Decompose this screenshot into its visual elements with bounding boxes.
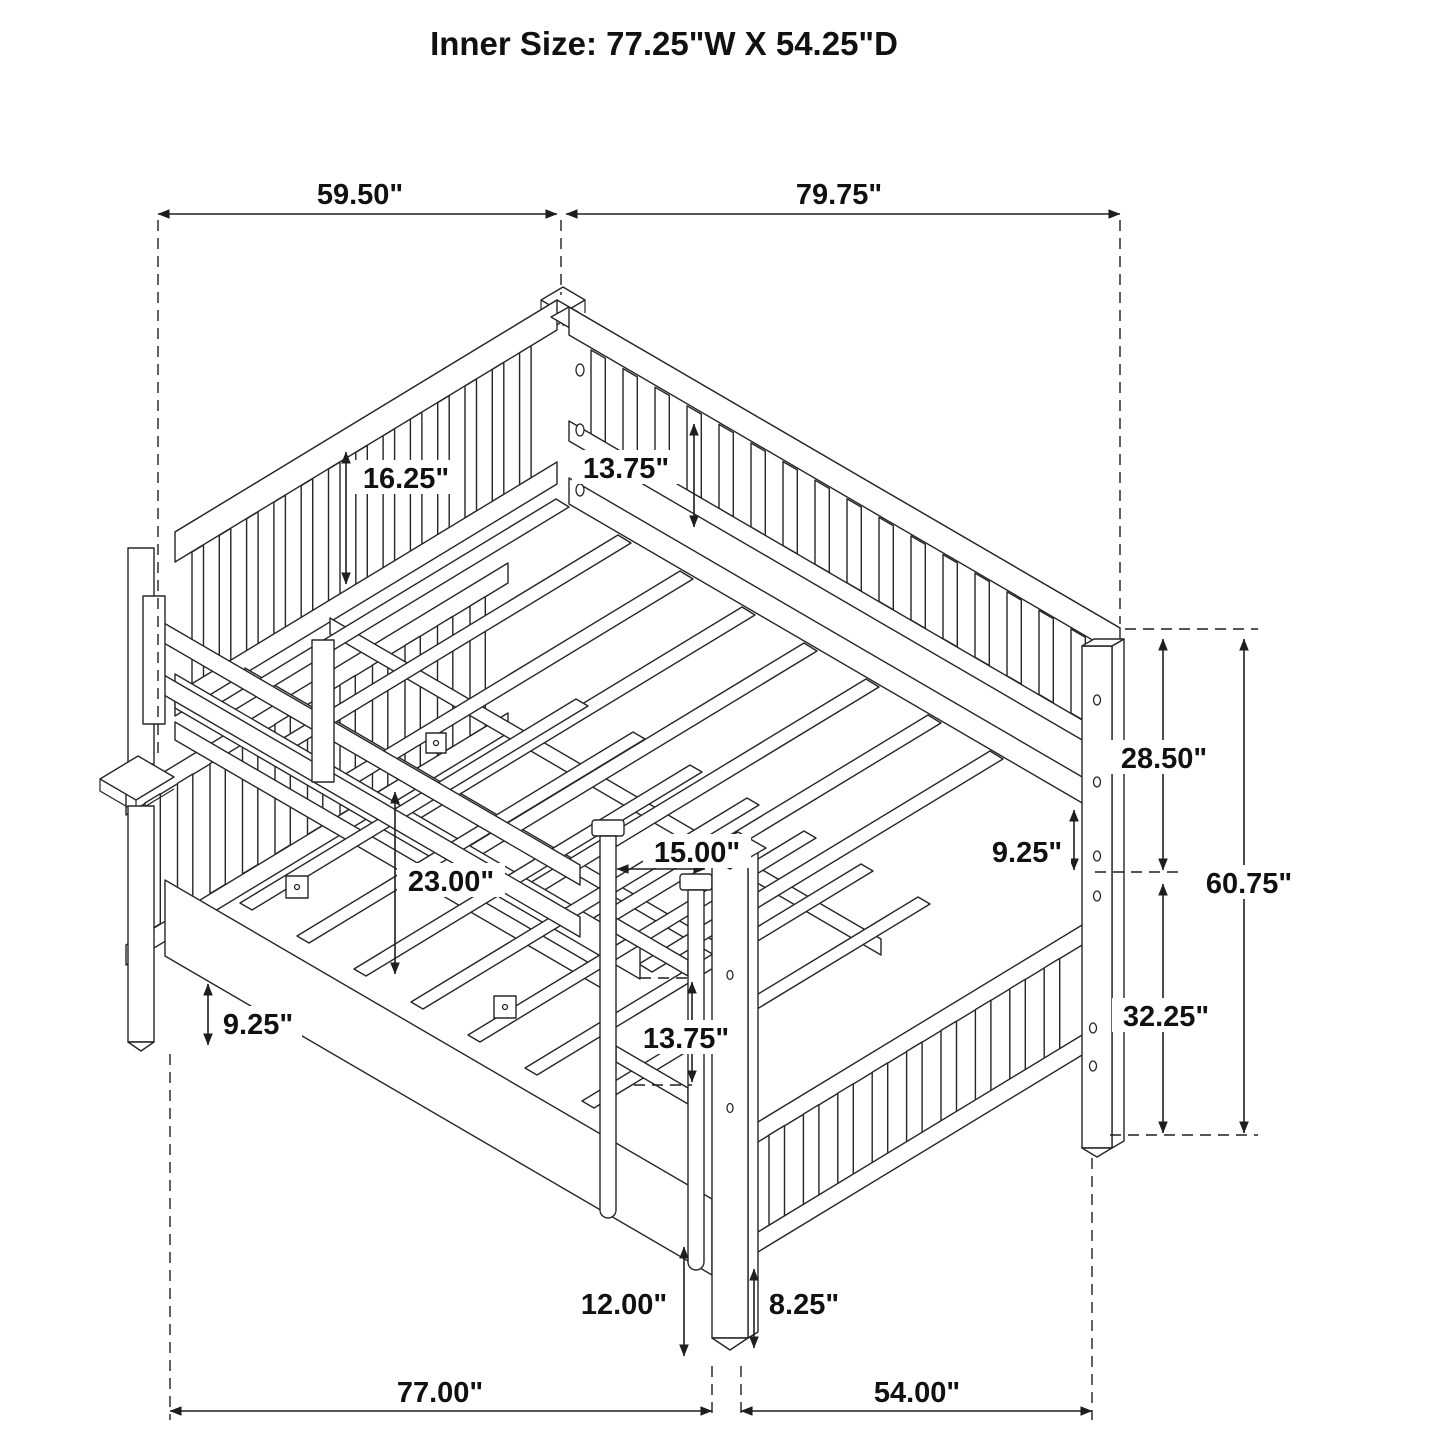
slat xyxy=(383,429,395,568)
dim-label-top-width-left: 59.50" xyxy=(317,179,403,211)
bunk-bed-dimension-diagram: 59.50" 79.75" 16.25" 13.75" 28.50" 9.25"… xyxy=(0,0,1445,1445)
slat xyxy=(911,536,925,628)
dim-label-base-width: 77.00" xyxy=(397,1377,483,1409)
slat xyxy=(301,479,313,618)
dim-label-headboard-panel: 16.25" xyxy=(363,463,449,495)
slat xyxy=(591,350,605,442)
slat xyxy=(210,754,225,893)
slat xyxy=(329,462,341,601)
slat xyxy=(815,480,829,572)
dim-label-ladder-bottom: 12.00" xyxy=(581,1289,667,1321)
slat xyxy=(247,512,259,651)
dim-label-upper-rail: 13.75" xyxy=(583,453,669,485)
slat xyxy=(465,379,477,518)
bed-drawing xyxy=(100,287,1124,1350)
slat xyxy=(274,495,286,634)
slat xyxy=(783,462,797,554)
slat xyxy=(623,369,637,461)
slat xyxy=(1039,610,1053,702)
slat xyxy=(943,555,957,647)
dim-label-post-leg: 8.25" xyxy=(769,1289,839,1321)
slat xyxy=(847,499,861,591)
right-post xyxy=(1082,639,1124,1157)
slat xyxy=(879,517,893,609)
dim-label-upper-section: 28.50" xyxy=(1121,743,1207,775)
dim-label-lower-section: 32.25" xyxy=(1123,1001,1209,1033)
dim-label-ladder-opening: 15.00" xyxy=(654,837,740,869)
dim-label-under-upper-clearance: 23.00" xyxy=(408,866,494,898)
dim-label-lower-rail: 13.75" xyxy=(643,1023,729,1055)
diagram-canvas: 59.50" 79.75" 16.25" 13.75" 28.50" 9.25"… xyxy=(0,0,1445,1445)
slat xyxy=(751,443,765,535)
page-title: Inner Size: 77.25"W X 54.25"D xyxy=(430,25,898,62)
dim-label-under-bed-clearance: 9.25" xyxy=(223,1009,293,1041)
slat xyxy=(520,346,532,485)
dim-label-overall-height: 60.75" xyxy=(1206,868,1292,900)
slat xyxy=(975,573,989,665)
dim-label-right-rail-gap: 9.25" xyxy=(992,837,1062,869)
slat xyxy=(1007,592,1021,684)
dim-label-base-depth: 54.00" xyxy=(874,1377,960,1409)
slat xyxy=(492,362,504,501)
slat xyxy=(219,528,231,667)
slat xyxy=(719,424,733,516)
front-post xyxy=(702,832,766,1350)
dim-label-top-width-right: 79.75" xyxy=(796,179,882,211)
